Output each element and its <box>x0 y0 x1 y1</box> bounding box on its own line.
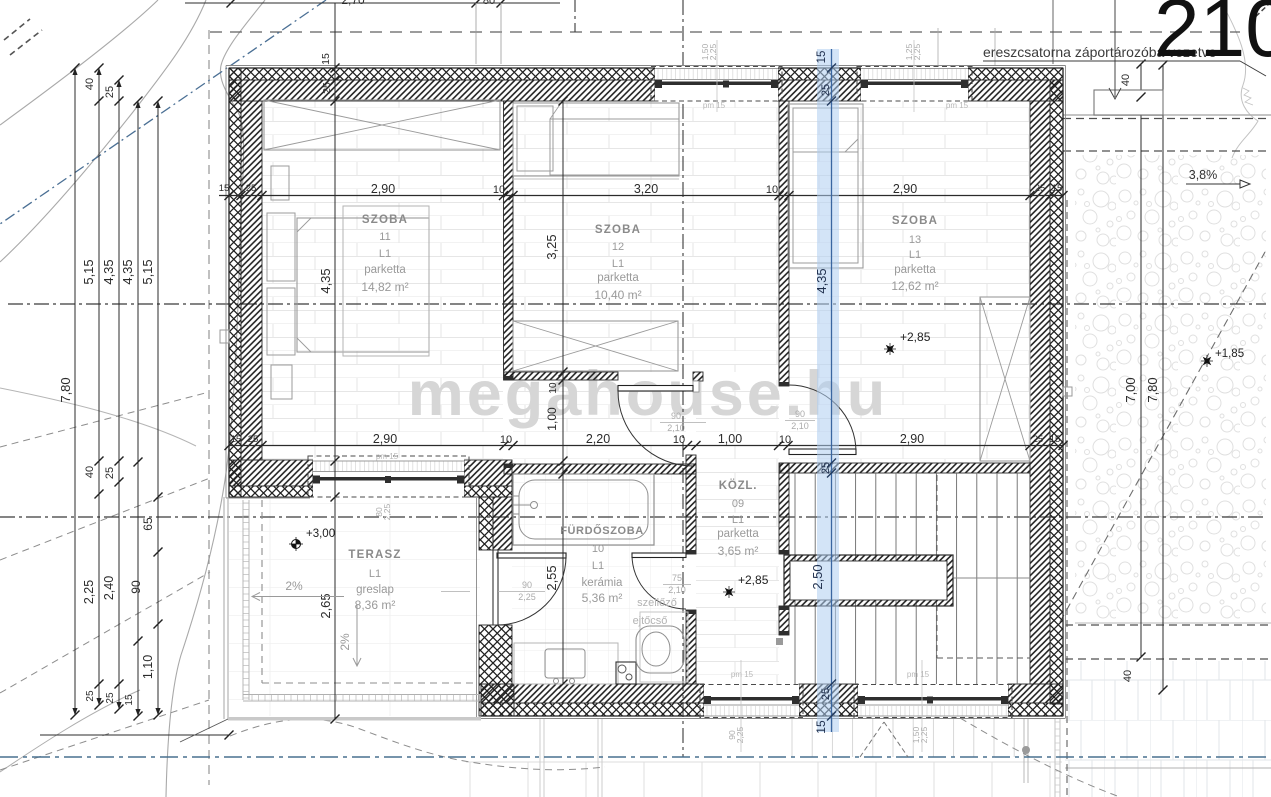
svg-text:2,10: 2,10 <box>667 423 685 433</box>
svg-text:2,40: 2,40 <box>102 576 116 600</box>
svg-text:25: 25 <box>246 183 257 194</box>
svg-text:14,82 m²: 14,82 m² <box>361 280 408 294</box>
svg-text:7,00: 7,00 <box>1123 377 1138 402</box>
svg-text:SZOBA: SZOBA <box>595 224 641 236</box>
svg-text:10: 10 <box>592 543 604 555</box>
svg-text:3,25: 3,25 <box>544 234 559 259</box>
svg-text:pm 15: pm 15 <box>703 101 726 110</box>
svg-text:parketta: parketta <box>597 272 639 284</box>
svg-text:FÜRDŐSZOBA: FÜRDŐSZOBA <box>560 524 644 537</box>
svg-text:5,36 m²: 5,36 m² <box>582 591 623 605</box>
svg-text:90: 90 <box>795 409 805 419</box>
svg-text:L1: L1 <box>732 514 744 526</box>
svg-text:90: 90 <box>522 580 532 590</box>
svg-text:SZOBA: SZOBA <box>362 214 408 226</box>
svg-text:75: 75 <box>672 573 682 583</box>
svg-text:90: 90 <box>129 580 143 594</box>
svg-text:+3,00: +3,00 <box>306 528 335 540</box>
svg-text:2,25: 2,25 <box>82 580 96 604</box>
svg-text:+2,85: +2,85 <box>738 573 769 587</box>
svg-text:pm 15: pm 15 <box>946 101 969 110</box>
svg-text:pm 15: pm 15 <box>907 670 930 679</box>
svg-text:10: 10 <box>673 434 685 446</box>
svg-text:2,70: 2,70 <box>341 0 365 7</box>
svg-text:40: 40 <box>1120 74 1132 86</box>
svg-text:25: 25 <box>248 434 259 445</box>
svg-text:25: 25 <box>820 84 832 96</box>
svg-text:2,90: 2,90 <box>893 182 917 196</box>
svg-text:L1: L1 <box>909 249 921 261</box>
svg-text:1,10: 1,10 <box>141 655 155 679</box>
svg-text:4,35: 4,35 <box>814 268 829 293</box>
svg-text:15: 15 <box>1052 183 1063 194</box>
svg-text:2,25: 2,25 <box>518 592 536 602</box>
svg-text:pm 15: pm 15 <box>731 670 754 679</box>
svg-text:parketta: parketta <box>717 528 759 540</box>
svg-text:25: 25 <box>85 690 96 702</box>
svg-text:3,65 m²: 3,65 m² <box>718 544 759 558</box>
svg-text:10: 10 <box>779 434 791 446</box>
svg-text:TERASZ: TERASZ <box>348 549 401 561</box>
svg-text:KÖZL.: KÖZL. <box>719 479 758 492</box>
svg-text:5,15: 5,15 <box>81 259 96 284</box>
svg-text:2,90: 2,90 <box>371 182 395 196</box>
svg-text:2,20: 2,20 <box>586 432 610 446</box>
svg-text:2,90: 2,90 <box>373 432 397 446</box>
svg-text:4,35: 4,35 <box>318 268 333 293</box>
svg-text:8,36 m²: 8,36 m² <box>355 598 396 612</box>
svg-text:90: 90 <box>671 411 681 421</box>
svg-text:15: 15 <box>124 694 135 706</box>
svg-text:2,55: 2,55 <box>544 565 559 590</box>
svg-text:11: 11 <box>379 231 390 243</box>
svg-text:1,00: 1,00 <box>545 407 559 431</box>
svg-text:25: 25 <box>1035 183 1046 194</box>
svg-text:25: 25 <box>1033 434 1044 445</box>
svg-text:3,20: 3,20 <box>634 182 658 196</box>
svg-text:1,00: 1,00 <box>718 432 742 446</box>
svg-text:L1: L1 <box>612 258 624 270</box>
svg-text:40: 40 <box>84 78 96 90</box>
svg-text:5,15: 5,15 <box>140 259 155 284</box>
svg-text:7,80: 7,80 <box>1145 377 1160 402</box>
svg-text:L1: L1 <box>592 560 604 572</box>
svg-text:12: 12 <box>612 241 624 253</box>
svg-text:2,25: 2,25 <box>919 726 929 743</box>
svg-text:15: 15 <box>320 53 332 65</box>
svg-text:2,10: 2,10 <box>791 421 809 431</box>
svg-text:25: 25 <box>820 462 832 474</box>
svg-text:kerámia: kerámia <box>582 577 624 589</box>
svg-text:+1,85: +1,85 <box>1215 348 1244 360</box>
svg-text:25: 25 <box>105 692 116 704</box>
svg-text:2,50: 2,50 <box>810 564 825 589</box>
svg-text:greslap: greslap <box>356 584 394 596</box>
svg-text:10: 10 <box>766 184 778 196</box>
svg-text:parketta: parketta <box>894 264 936 276</box>
svg-text:2,10: 2,10 <box>668 585 686 595</box>
svg-text:65: 65 <box>141 517 155 531</box>
svg-text:10: 10 <box>493 184 505 196</box>
svg-text:2,25: 2,25 <box>708 43 718 60</box>
svg-text:L1: L1 <box>379 248 391 260</box>
svg-text:2,25: 2,25 <box>735 726 745 743</box>
svg-text:210: 210 <box>1154 0 1271 74</box>
svg-text:megahouse.hu: megahouse.hu <box>408 359 889 429</box>
svg-text:pm 15: pm 15 <box>376 452 399 461</box>
svg-text:10,40 m²: 10,40 m² <box>594 288 641 302</box>
svg-text:L1: L1 <box>369 568 381 580</box>
svg-text:4,35: 4,35 <box>101 259 116 284</box>
svg-text:13: 13 <box>909 234 921 246</box>
svg-text:+2,85: +2,85 <box>900 330 931 344</box>
svg-text:40: 40 <box>84 466 96 478</box>
svg-text:ejtőcső: ejtőcső <box>633 615 668 627</box>
svg-text:2,90: 2,90 <box>900 432 924 446</box>
svg-text:2,65: 2,65 <box>318 593 333 618</box>
svg-text:15: 15 <box>219 183 230 194</box>
svg-text:2,25: 2,25 <box>912 43 922 60</box>
svg-text:10: 10 <box>548 382 559 394</box>
svg-text:15: 15 <box>231 434 242 445</box>
svg-text:2%: 2% <box>338 633 352 651</box>
svg-text:25: 25 <box>321 82 333 94</box>
svg-text:15: 15 <box>814 720 828 734</box>
svg-text:4,35: 4,35 <box>120 259 135 284</box>
svg-text:80: 80 <box>483 0 495 7</box>
svg-text:25: 25 <box>104 467 116 479</box>
svg-text:szellőző: szellőző <box>637 597 677 609</box>
svg-text:3,8%: 3,8% <box>1189 168 1218 182</box>
svg-text:15: 15 <box>816 51 828 64</box>
svg-text:25: 25 <box>820 688 832 700</box>
svg-text:2,25: 2,25 <box>382 503 392 520</box>
svg-text:SZOBA: SZOBA <box>892 215 938 227</box>
svg-text:7,80: 7,80 <box>58 377 73 402</box>
svg-text:25: 25 <box>104 86 116 98</box>
svg-text:40: 40 <box>1122 670 1134 682</box>
svg-text:10: 10 <box>500 434 512 446</box>
svg-text:parketta: parketta <box>364 264 406 276</box>
svg-text:09: 09 <box>732 498 744 510</box>
svg-text:12,62 m²: 12,62 m² <box>891 279 938 293</box>
svg-text:15: 15 <box>1050 434 1061 445</box>
svg-text:2%: 2% <box>285 579 303 593</box>
